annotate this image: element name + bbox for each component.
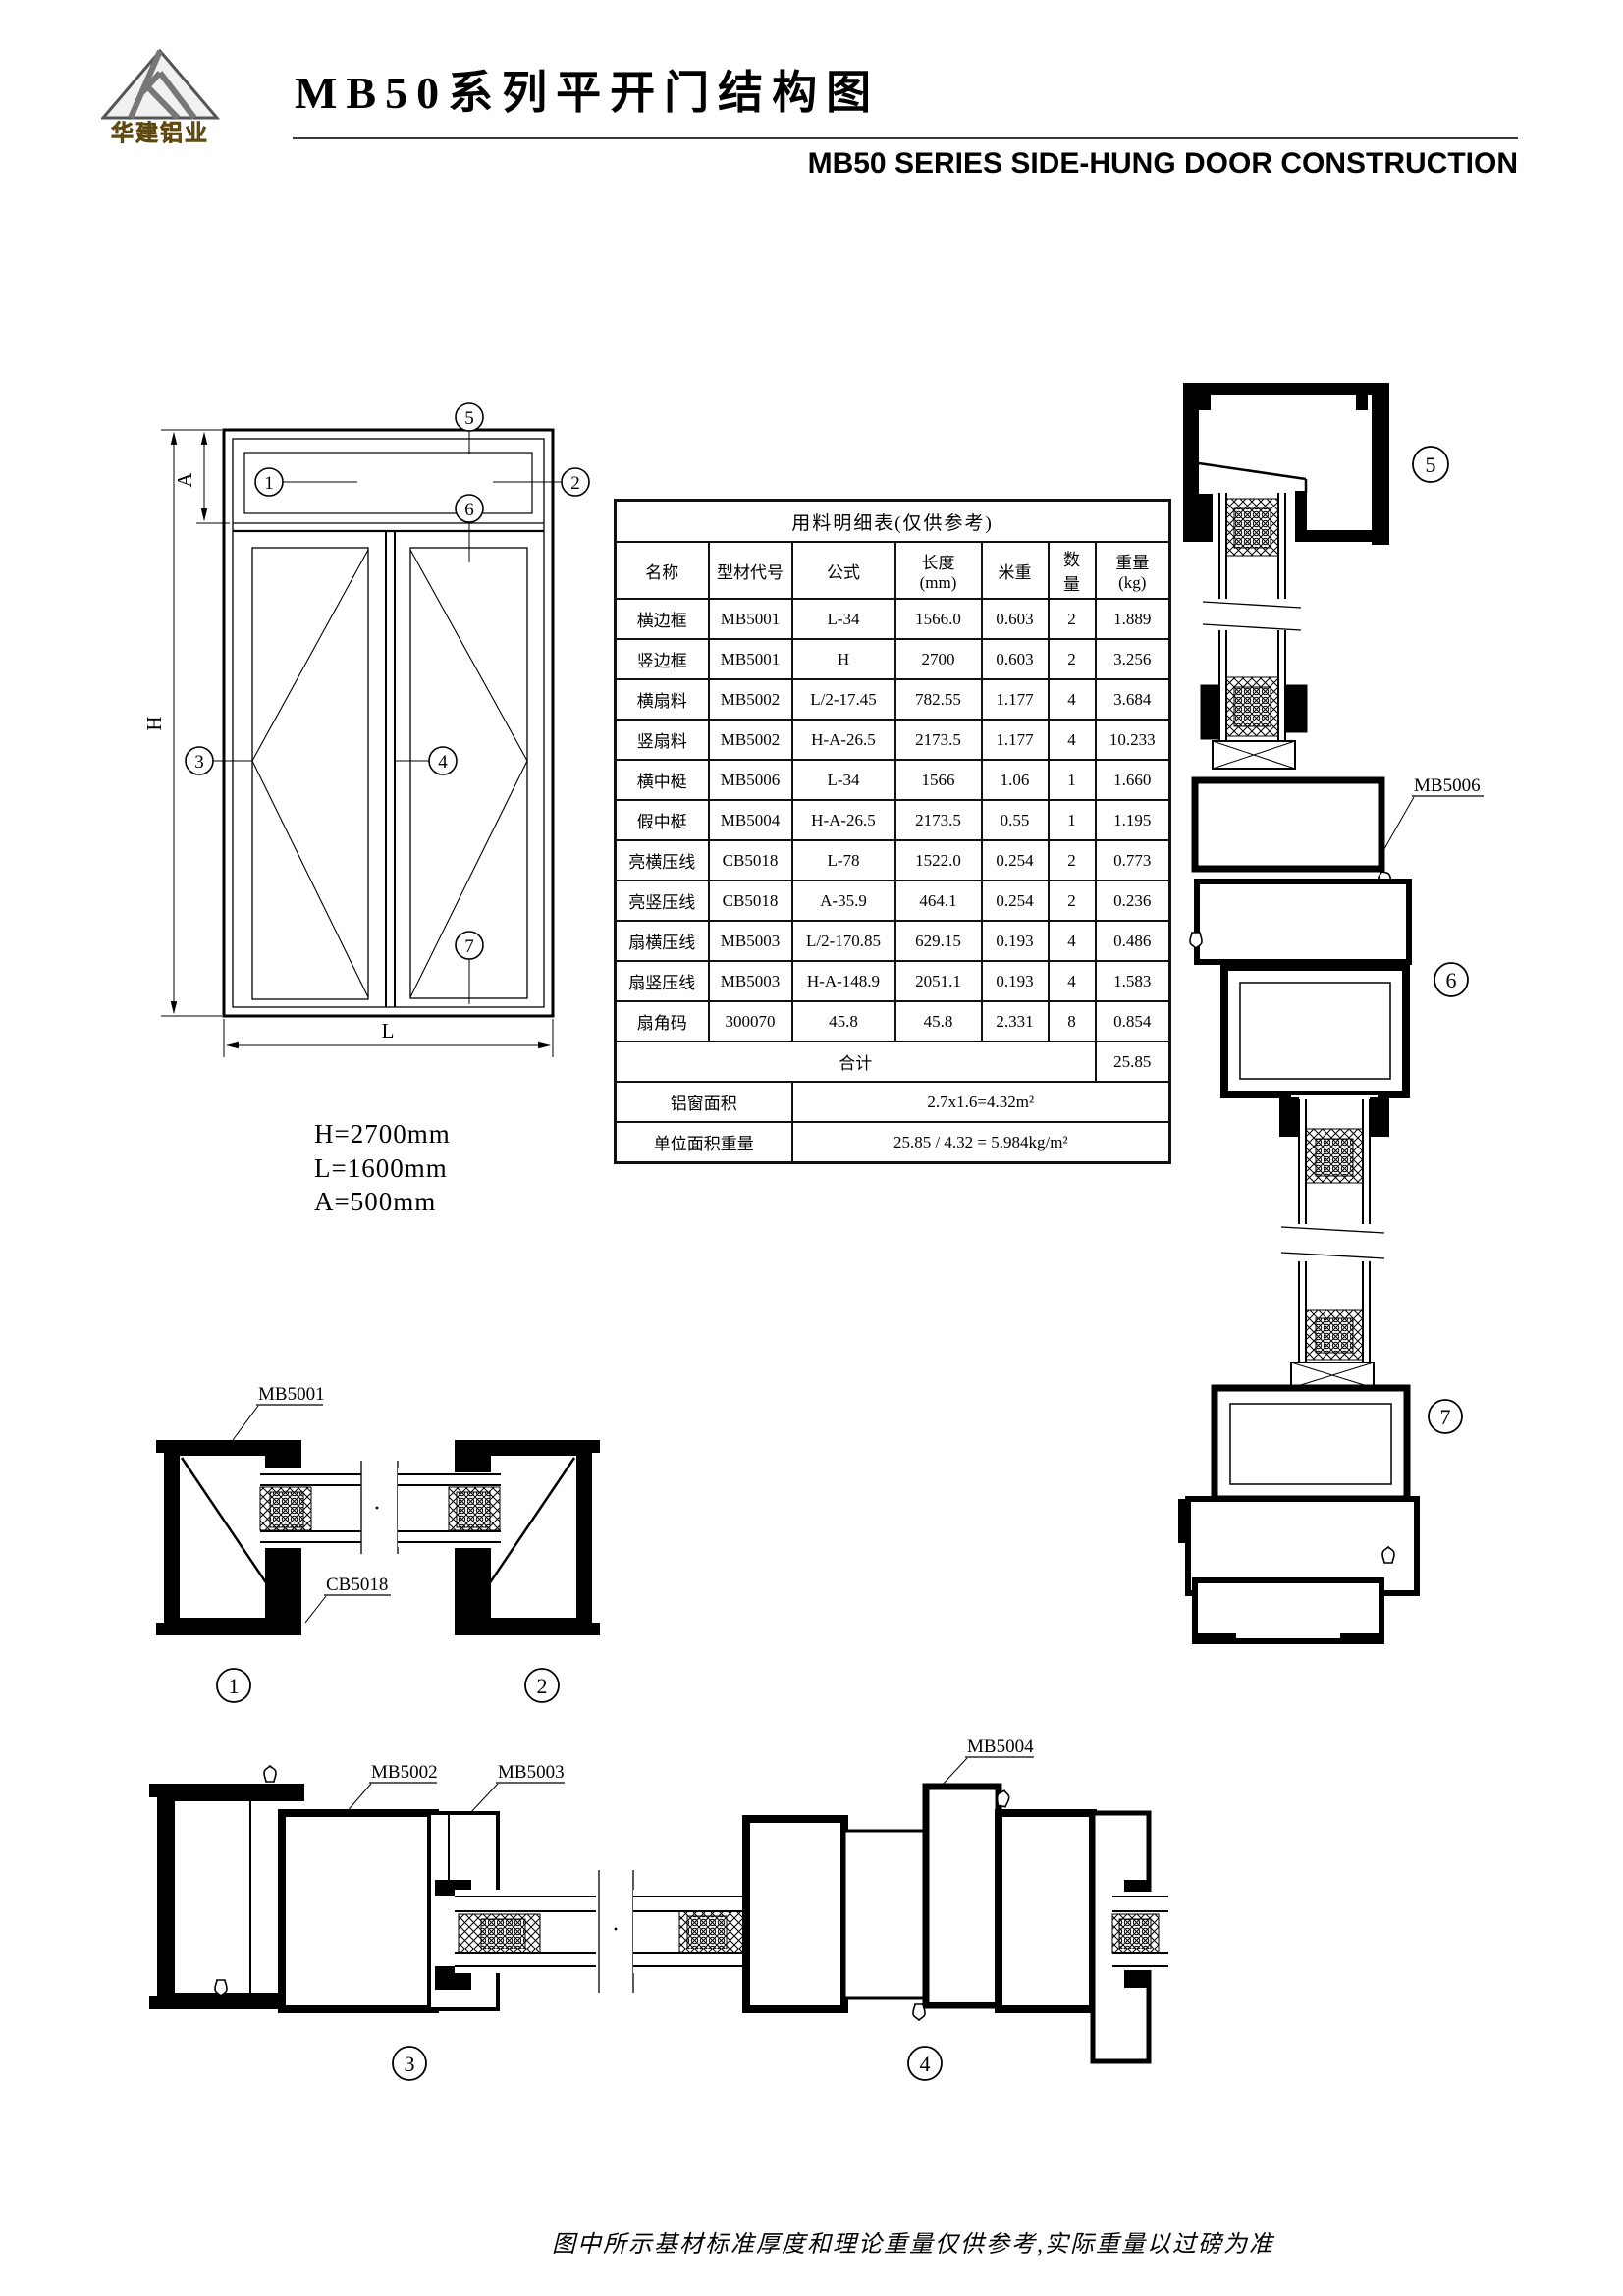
dim-a-value: A=500mm [314, 1185, 451, 1219]
mb5001-label: MB5001 [258, 1384, 325, 1405]
table-cell: 2.331 [982, 1001, 1049, 1041]
page-subtitle: MB50 SERIES SIDE-HUNG DOOR CONSTRUCTION [293, 147, 1518, 181]
glazing-section4-right [1112, 1892, 1168, 1970]
table-cell: 45.8 [895, 1001, 982, 1041]
table-cell: 横扇料 [616, 679, 709, 720]
table-cell: 扇角码 [616, 1001, 709, 1041]
table-cell: L-34 [792, 599, 895, 639]
table-cell: 1 [1049, 800, 1096, 840]
table-cell: 2173.5 [895, 800, 982, 840]
table-cell: 1.06 [982, 760, 1049, 800]
table-cell: 横中梃 [616, 760, 709, 800]
unit-label: 单位面积重量 [616, 1122, 792, 1163]
table-header-row: 名称 型材代号 公式 长度(mm) 米重 数量 重量(kg) [616, 542, 1170, 599]
table-cell: H-A-148.9 [792, 961, 895, 1001]
table-row: 亮横压线CB5018L-781522.00.25420.773 [616, 840, 1170, 881]
glazing-right [398, 1468, 501, 1547]
section-callouts: 5 6 7 [1413, 447, 1468, 1433]
table-cell: 629.15 [895, 921, 982, 961]
callout-6: 6 [456, 495, 483, 522]
table-row: 亮竖压线CB5018A-35.9464.10.25420.236 [616, 881, 1170, 921]
logo-triangle-icon [103, 51, 217, 118]
svg-text:7: 7 [464, 936, 474, 957]
svg-text:1: 1 [229, 1674, 240, 1698]
col-header-wt: 重量(kg) [1096, 542, 1170, 599]
dim-h-label: H [147, 716, 166, 730]
company-logo: 华建铝业 [101, 49, 229, 147]
callout-4-section: 4 [908, 2047, 942, 2080]
right-door-leaf [410, 548, 527, 998]
unit-value: 25.85 / 4.32 = 5.984kg/m² [792, 1122, 1170, 1163]
footer-note: 图中所示基材标准厚度和理论重量仅供参考,实际重量以过磅为准 [275, 2224, 1551, 2259]
table-cell: 300070 [709, 1001, 792, 1041]
table-cell: 1522.0 [895, 840, 982, 881]
table-cell: 1 [1049, 760, 1096, 800]
callout-2: 2 [562, 468, 589, 496]
svg-text:1: 1 [264, 473, 274, 494]
table-cell: 亮横压线 [616, 840, 709, 881]
callout-1: 1 [255, 468, 283, 496]
table-cell: 扇横压线 [616, 921, 709, 961]
transom-panel [244, 453, 532, 513]
table-cell: MB5002 [709, 679, 792, 720]
svg-text:7: 7 [1440, 1405, 1451, 1429]
col-header-mw: 米重 [982, 542, 1049, 599]
col-header-length: 长度(mm) [895, 542, 982, 599]
table-cell: MB5003 [709, 961, 792, 1001]
svg-text:5: 5 [464, 408, 474, 429]
table-cell: 0.486 [1096, 921, 1170, 961]
vertical-section-drawing: MB5006 [1163, 245, 1497, 1664]
svg-text:4: 4 [920, 2052, 931, 2076]
right-swing-symbol [410, 550, 527, 997]
glazing-left [260, 1461, 398, 1554]
table-cell: A-35.9 [792, 881, 895, 921]
table-cell: L-34 [792, 760, 895, 800]
col-header-name: 名称 [616, 542, 709, 599]
stile-gap-profile [844, 1831, 926, 1998]
table-cell: 0.193 [982, 921, 1049, 961]
callout-6-section: 6 [1434, 963, 1468, 996]
callout-7: 7 [456, 932, 483, 959]
svg-text:6: 6 [1446, 968, 1457, 992]
table-row: 假中梃MB5004H-A-26.52173.50.5511.195 [616, 800, 1170, 840]
door-frame [224, 430, 553, 1016]
table-row: 竖边框MB5001H27000.60323.256 [616, 639, 1170, 679]
table-cell: 1.660 [1096, 760, 1170, 800]
table-cell: 0.236 [1096, 881, 1170, 921]
mullion-section-drawing: MB5002 MB5003 [98, 1733, 1178, 2174]
mb5002-label: MB5002 [371, 1762, 438, 1783]
table-area-row: 铝窗面积2.7x1.6=4.32m² [616, 1082, 1170, 1122]
table-cell: 2700 [895, 639, 982, 679]
table-row: 横中梃MB5006L-3415661.0611.660 [616, 760, 1170, 800]
mb5003-label: MB5003 [498, 1762, 565, 1783]
table-cell: MB5002 [709, 720, 792, 760]
table-cell: 4 [1049, 679, 1096, 720]
right-stile-profile [999, 1813, 1093, 2009]
table-cell: CB5018 [709, 881, 792, 921]
callout-5-section: 5 [1413, 447, 1448, 482]
cb5018-label: CB5018 [326, 1575, 388, 1595]
table-cell: 2 [1049, 639, 1096, 679]
table-cell: 2 [1049, 881, 1096, 921]
table-row: 扇横压线MB5003L/2-170.85629.150.19340.486 [616, 921, 1170, 961]
dim-h-value: H=2700mm [314, 1117, 451, 1151]
total-value: 25.85 [1096, 1041, 1170, 1082]
table-title-row: 用料明细表(仅供参考) [616, 501, 1170, 543]
table-cell: MB5006 [709, 760, 792, 800]
table-cell: L-78 [792, 840, 895, 881]
drawing-sheet: 华建铝业 MB50系列平开门结构图 MB50 SERIES SIDE-HUNG … [0, 0, 1623, 2296]
table-row: 竖扇料MB5002H-A-26.52173.51.177410.233 [616, 720, 1170, 760]
table-row: 扇竖压线MB5003H-A-148.92051.10.19341.583 [616, 961, 1170, 1001]
total-label: 合计 [616, 1041, 1096, 1082]
table-cell: CB5018 [709, 840, 792, 881]
table-cell: H-A-26.5 [792, 800, 895, 840]
table-cell: 假中梃 [616, 800, 709, 840]
callout-2-section: 2 [525, 1669, 559, 1702]
logo-text: 华建铝业 [111, 120, 209, 145]
table-cell: 0.55 [982, 800, 1049, 840]
table-cell: 0.603 [982, 599, 1049, 639]
dimension-notes: H=2700mm L=1600mm A=500mm [314, 1117, 451, 1219]
table-cell: 0.254 [982, 881, 1049, 921]
callout-3-section: 3 [393, 2047, 426, 2080]
table-cell: 横边框 [616, 599, 709, 639]
table-cell: 1.177 [982, 679, 1049, 720]
svg-text:4: 4 [438, 752, 448, 773]
area-label: 铝窗面积 [616, 1082, 792, 1122]
table-unit-row: 单位面积重量25.85 / 4.32 = 5.984kg/m² [616, 1122, 1170, 1163]
table-cell: 2173.5 [895, 720, 982, 760]
table-title: 用料明细表(仅供参考) [616, 501, 1170, 543]
left-swing-symbol [252, 550, 368, 997]
sill-profile [1178, 1388, 1417, 1643]
table-cell: 1566 [895, 760, 982, 800]
table-cell: 2 [1049, 840, 1096, 881]
table-row: 横扇料MB5002L/2-17.45782.551.17743.684 [616, 679, 1170, 720]
table-cell: H-A-26.5 [792, 720, 895, 760]
table-cell: 1566.0 [895, 599, 982, 639]
table-cell: 扇竖压线 [616, 961, 709, 1001]
table-cell: 1.583 [1096, 961, 1170, 1001]
title-divider [293, 137, 1518, 139]
table-cell: MB5001 [709, 599, 792, 639]
table-cell: MB5001 [709, 639, 792, 679]
door-elevation-drawing: H A L 5 1 2 6 3 4 7 [147, 398, 619, 1085]
table-cell: MB5004 [709, 800, 792, 840]
table-cell: H [792, 639, 895, 679]
jamb-section-drawing: MB5001 [113, 1364, 633, 1737]
table-cell: 0.603 [982, 639, 1049, 679]
callout-1-section: 1 [217, 1669, 250, 1702]
glazing-upper [1201, 491, 1307, 774]
table-cell: 4 [1049, 720, 1096, 760]
dim-l-value: L=1600mm [314, 1151, 451, 1186]
page-title: MB50系列平开门结构图 [295, 57, 880, 122]
table-cell: 0.773 [1096, 840, 1170, 881]
svg-text:2: 2 [537, 1674, 548, 1698]
dimension-lines [161, 430, 553, 1057]
svg-text:3: 3 [194, 752, 204, 773]
glazing-lower [1279, 1095, 1389, 1388]
table-row: 扇角码30007045.845.82.33180.854 [616, 1001, 1170, 1041]
mb5006-label: MB5006 [1414, 775, 1481, 796]
table-cell: 竖扇料 [616, 720, 709, 760]
table-cell: 1.177 [982, 720, 1049, 760]
table-cell: 0.854 [1096, 1001, 1170, 1041]
table-cell: 782.55 [895, 679, 982, 720]
col-header-formula: 公式 [792, 542, 895, 599]
svg-text:3: 3 [405, 2052, 415, 2076]
table-cell: 2 [1049, 599, 1096, 639]
dim-a-label: A [173, 472, 196, 488]
svg-text:5: 5 [1426, 453, 1436, 477]
col-header-code: 型材代号 [709, 542, 792, 599]
callout-7-section: 7 [1429, 1400, 1462, 1433]
elevation-callouts: 5 1 2 6 3 4 7 [186, 403, 589, 1004]
table-cell: MB5003 [709, 921, 792, 961]
table-total-row: 合计25.85 [616, 1041, 1170, 1082]
dim-l-label: L [382, 1019, 395, 1042]
transom-profile: MB5006 [1190, 775, 1484, 1095]
area-value: 2.7x1.6=4.32m² [792, 1082, 1170, 1122]
table-cell: 4 [1049, 921, 1096, 961]
table-cell: 45.8 [792, 1001, 895, 1041]
callout-4: 4 [429, 747, 457, 774]
table-cell: L/2-17.45 [792, 679, 895, 720]
table-cell: L/2-170.85 [792, 921, 895, 961]
table-cell: 1.889 [1096, 599, 1170, 639]
table-cell: 3.684 [1096, 679, 1170, 720]
sash-profile-mb5002 [282, 1813, 435, 2009]
callout-5: 5 [456, 403, 483, 431]
table-cell: 8 [1049, 1001, 1096, 1041]
table-cell: 亮竖压线 [616, 881, 709, 921]
table-cell: 4 [1049, 961, 1096, 1001]
table-cell: 竖边框 [616, 639, 709, 679]
materials-table: 用料明细表(仅供参考) 名称 型材代号 公式 长度(mm) 米重 数量 重量(k… [614, 499, 1171, 1164]
table-cell: 3.256 [1096, 639, 1170, 679]
left-stile-profile [746, 1819, 844, 2009]
left-door-leaf [252, 548, 368, 999]
col-header-qty: 数量 [1049, 542, 1096, 599]
mb5004-label: MB5004 [967, 1736, 1034, 1757]
table-cell: 464.1 [895, 881, 982, 921]
table-cell: 1.195 [1096, 800, 1170, 840]
table-cell: 0.193 [982, 961, 1049, 1001]
table-row: 横边框MB5001L-341566.00.60321.889 [616, 599, 1170, 639]
callout-3: 3 [186, 747, 213, 774]
svg-text:2: 2 [570, 473, 580, 494]
table-cell: 2051.1 [895, 961, 982, 1001]
svg-text:6: 6 [464, 500, 474, 520]
table-cell: 0.254 [982, 840, 1049, 881]
table-cell: 10.233 [1096, 720, 1170, 760]
